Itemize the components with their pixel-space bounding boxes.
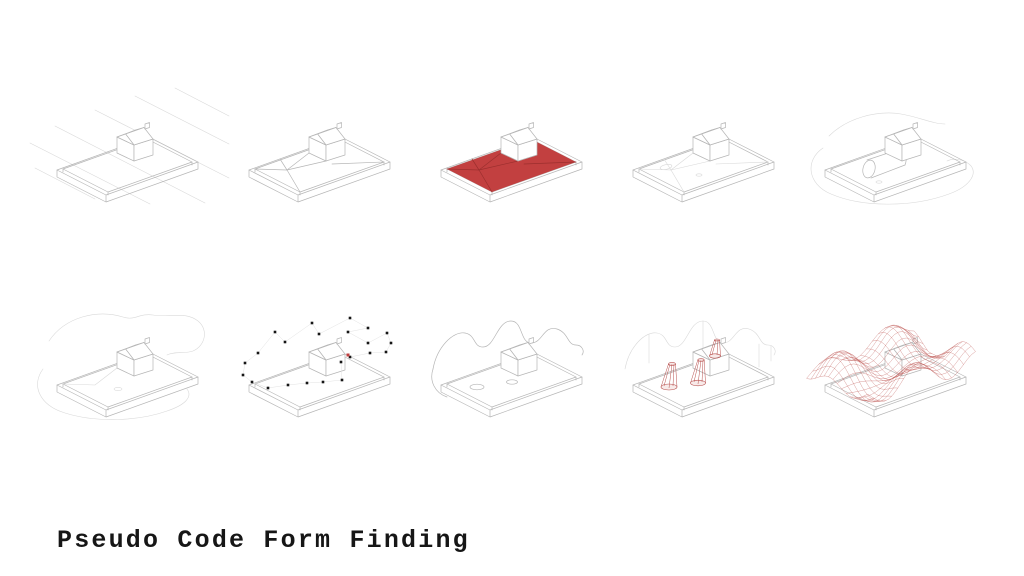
building-volume — [501, 123, 537, 162]
step-figure-9 — [611, 303, 805, 443]
sketch-blob-context — [35, 303, 229, 443]
building-volume — [501, 338, 537, 377]
building-volume — [117, 123, 153, 162]
opening-mark-large — [470, 384, 484, 390]
context-blob-outlines — [811, 113, 973, 204]
step-figure-8 — [419, 303, 613, 443]
building-volume — [693, 123, 729, 162]
sketch-point-cloud — [227, 303, 421, 443]
step-figure-7 — [227, 303, 421, 443]
opening-mark-small — [507, 380, 518, 384]
opening-mark-small — [876, 181, 882, 183]
sketch-form-found-mesh — [803, 303, 997, 443]
step-figure-3 — [419, 88, 613, 228]
building-volume — [309, 123, 345, 162]
sketch-cylinder-context — [803, 88, 997, 228]
building-volume — [309, 338, 345, 377]
sketch-wavy-boundary — [419, 303, 613, 443]
sketch-triangulated — [227, 88, 421, 228]
step-figure-1 — [35, 88, 229, 228]
step-figure-4 — [611, 88, 805, 228]
sketch-surface-relaxed — [611, 88, 805, 228]
building-volume — [117, 338, 153, 377]
page-title: Pseudo Code Form Finding — [57, 526, 470, 555]
building-volume — [885, 123, 921, 162]
sketch-attractor-cones — [611, 303, 805, 443]
relaxed-crease-lines — [639, 153, 768, 192]
step-figure-5 — [803, 88, 997, 228]
floor-crease — [63, 368, 117, 385]
step-figure-10 — [803, 303, 997, 443]
sketch-surface-red — [419, 88, 613, 228]
presentation-sheet: Pseudo Code Form Finding — [0, 0, 1024, 576]
sketch-site-context — [35, 88, 229, 228]
surface-crease-lines — [255, 153, 384, 192]
opening-mark-small — [114, 387, 122, 390]
opening-mark-small — [696, 174, 702, 176]
step-figure-6 — [35, 303, 229, 443]
step-figure-2 — [227, 88, 421, 228]
